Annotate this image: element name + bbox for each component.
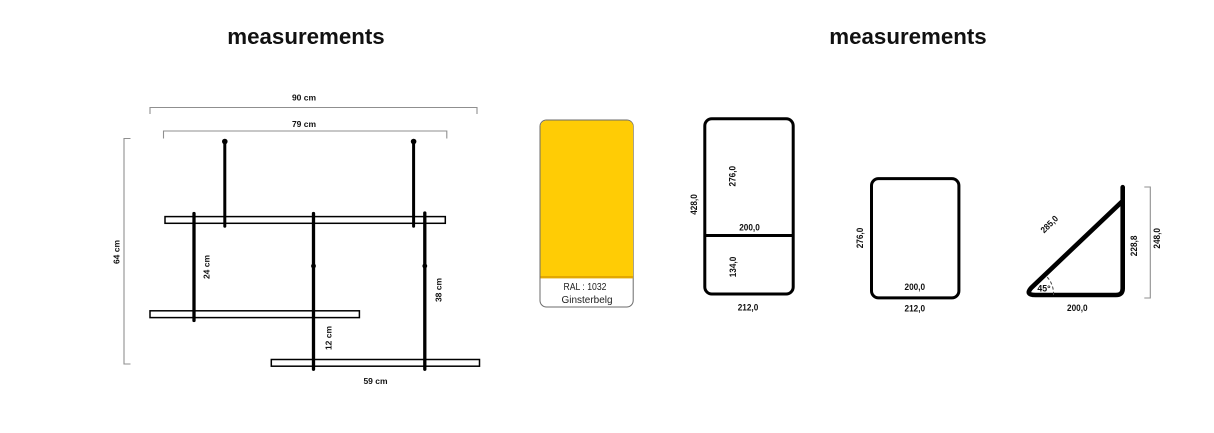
- svg-text:90 cm: 90 cm: [292, 93, 317, 103]
- svg-text:200,0: 200,0: [905, 282, 926, 292]
- svg-text:59 cm: 59 cm: [363, 376, 388, 386]
- svg-text:64 cm: 64 cm: [112, 240, 122, 265]
- svg-text:212,0: 212,0: [738, 302, 759, 312]
- svg-text:248,0: 248,0: [1152, 228, 1162, 249]
- svg-text:200,0: 200,0: [1067, 303, 1088, 313]
- svg-text:212,0: 212,0: [905, 303, 926, 313]
- svg-text:38 cm: 38 cm: [434, 278, 444, 303]
- svg-text:134,0: 134,0: [728, 257, 738, 278]
- svg-text:45°: 45°: [1037, 283, 1051, 293]
- svg-text:276,0: 276,0: [727, 166, 737, 187]
- svg-text:228,8: 228,8: [1129, 236, 1139, 257]
- svg-text:12 cm: 12 cm: [324, 326, 334, 351]
- svg-text:measurements: measurements: [227, 24, 384, 49]
- svg-text:measurements: measurements: [829, 24, 986, 49]
- svg-text:428,0: 428,0: [689, 194, 699, 215]
- svg-text:276,0: 276,0: [855, 228, 865, 249]
- svg-text:200,0: 200,0: [739, 222, 760, 232]
- svg-text:Ginsterbelg: Ginsterbelg: [562, 295, 613, 306]
- svg-text:RAL : 1032: RAL : 1032: [564, 282, 607, 293]
- svg-text:79 cm: 79 cm: [292, 119, 317, 129]
- svg-text:24 cm: 24 cm: [202, 255, 212, 280]
